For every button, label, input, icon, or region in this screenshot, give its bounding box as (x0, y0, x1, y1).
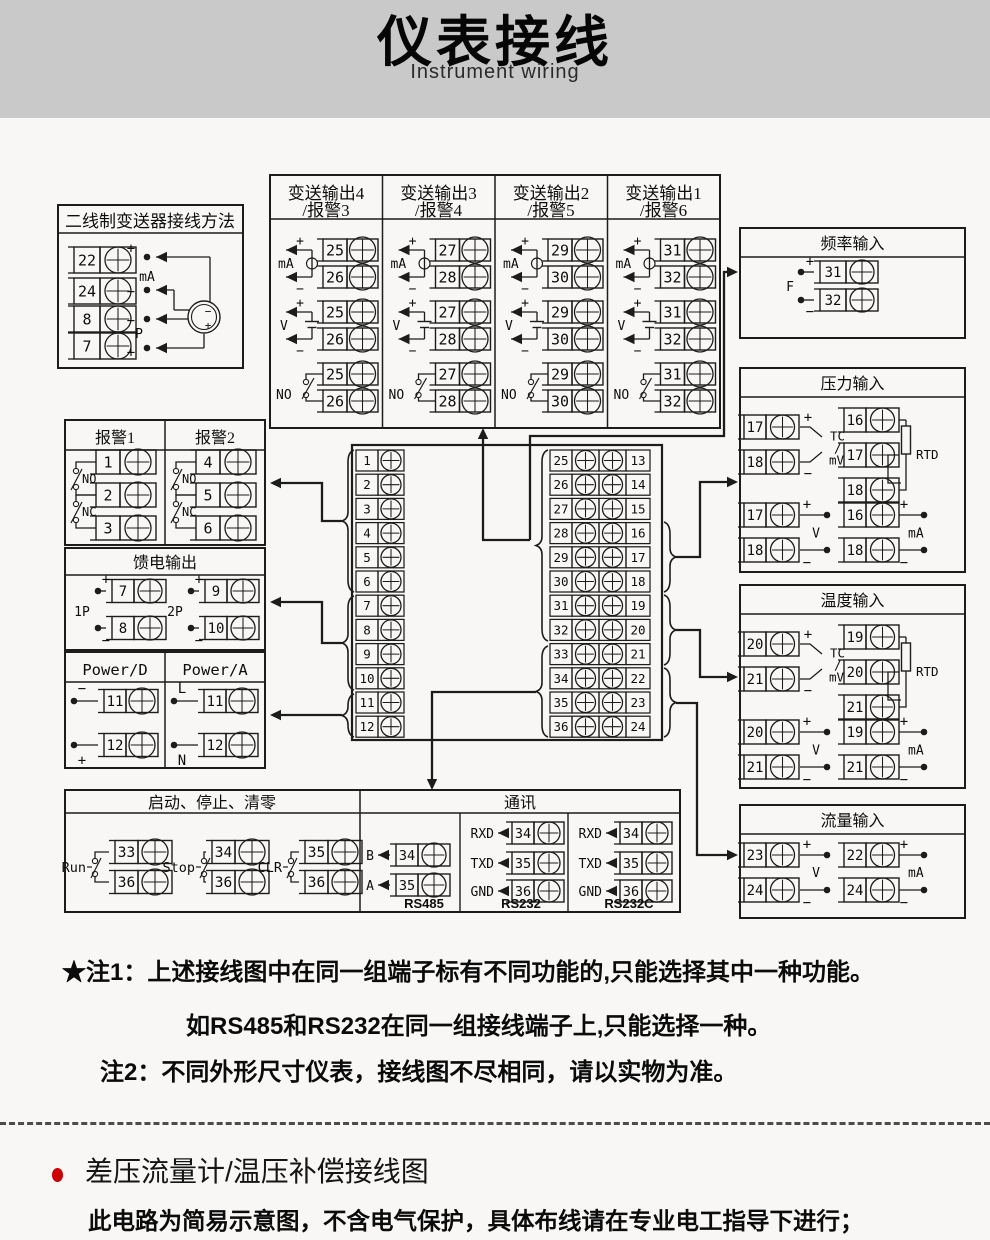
terminal-right-22: 22 (626, 668, 650, 689)
svg-text:−: − (900, 555, 908, 571)
svg-text:−: − (205, 305, 212, 318)
svg-text:35: 35 (308, 845, 325, 861)
terminal-35: 35 (390, 873, 450, 897)
alarm-column-2: 报警2456NONC (171, 429, 256, 541)
svg-text:NO: NO (82, 472, 96, 486)
terminal-29: 29 (542, 299, 603, 325)
svg-text:11: 11 (107, 694, 124, 710)
terminal-31: 31 (814, 260, 878, 284)
svg-text:−: − (634, 282, 642, 297)
terminal-27: 27 (430, 237, 491, 263)
svg-text:35: 35 (515, 856, 531, 872)
svg-text:1: 1 (103, 453, 112, 471)
terminal-mid-31: 31 (550, 595, 626, 616)
svg-text:压力输入: 压力输入 (820, 375, 884, 393)
terminal-left-4: 4 (356, 523, 404, 544)
terminal-left-1: 1 (356, 450, 404, 471)
svg-text:4: 4 (203, 453, 212, 471)
svg-text:−: − (127, 284, 135, 300)
terminal-21: 21 (838, 755, 899, 779)
svg-text:32: 32 (663, 330, 681, 348)
svg-text:18: 18 (847, 483, 864, 499)
svg-text:31: 31 (663, 365, 681, 383)
terminal-6: 6 (190, 515, 256, 541)
svg-text:+: + (803, 714, 811, 730)
svg-text:2: 2 (103, 486, 112, 504)
footer-body: 此电路为简易示意图，不含电气保护，具体布线请在专业电工指导下进行； (88, 1202, 864, 1236)
terminal-8: 8 (106, 616, 166, 640)
svg-text:1P: 1P (74, 605, 90, 620)
terminal-11: 11 (98, 688, 158, 714)
svg-text:−: − (900, 772, 908, 788)
terminal-mid-36: 36 (550, 716, 626, 737)
svg-text:4: 4 (363, 526, 371, 541)
svg-text:V: V (812, 744, 820, 759)
svg-text:+: + (634, 234, 642, 249)
terminal-right-13: 13 (626, 450, 650, 471)
svg-text:28: 28 (553, 526, 568, 541)
feed-group-1P: 78+−1P (74, 572, 166, 649)
terminal-right-17: 17 (626, 547, 650, 568)
terminal-right-21: 21 (626, 644, 650, 665)
arrow-icon (270, 597, 281, 607)
terminal-mid-26: 26 (550, 474, 626, 495)
terminal-35: 35 (506, 852, 564, 874)
footer-heading-text: 差压流量计/温压补偿接线图 (85, 1156, 429, 1187)
svg-text:35: 35 (553, 695, 568, 710)
svg-text:−: − (296, 344, 304, 359)
svg-text:2P: 2P (167, 605, 183, 620)
svg-text:32: 32 (663, 392, 681, 410)
svg-text:mA: mA (278, 257, 294, 272)
svg-text:+: + (900, 837, 908, 853)
svg-text:+: + (634, 296, 642, 311)
svg-text:11: 11 (359, 695, 374, 710)
svg-text:30: 30 (551, 330, 569, 348)
terminal-left-6: 6 (356, 571, 404, 592)
svg-text:24: 24 (747, 883, 764, 899)
svg-text:F: F (786, 280, 794, 295)
svg-text:mA: mA (908, 866, 924, 881)
svg-text:−: − (521, 282, 529, 297)
svg-text:+: + (78, 753, 86, 769)
svg-text:+: + (806, 254, 814, 270)
arrow-icon (270, 478, 281, 488)
svg-text:mA: mA (139, 270, 155, 285)
terminal-mid-34: 34 (550, 668, 626, 689)
svg-text:馈电输出: 馈电输出 (133, 554, 197, 572)
terminal-17: 17 (738, 415, 799, 439)
svg-text:P: P (135, 327, 143, 342)
svg-text:−: − (127, 313, 135, 329)
svg-text:−: − (409, 282, 417, 297)
svg-text:10: 10 (208, 621, 225, 637)
terminal-right-15: 15 (626, 498, 650, 519)
svg-text:32: 32 (825, 293, 842, 309)
svg-text:/报警4: /报警4 (415, 201, 463, 220)
dashed-divider (0, 1122, 990, 1125)
svg-text:1: 1 (363, 453, 371, 468)
svg-text:温度输入: 温度输入 (820, 592, 884, 610)
terminal-19: 19 (838, 720, 899, 744)
terminal-mid-28: 28 (550, 523, 626, 544)
svg-text:−: − (803, 895, 811, 911)
svg-text:NO: NO (182, 472, 196, 486)
comm-group-RS232C: 34RXD35TXD36GNDRS232C (579, 822, 672, 911)
svg-text:+: + (804, 410, 812, 426)
terminal-18: 18 (738, 450, 799, 474)
footer-heading: 差压流量计/温压补偿接线图 (52, 1150, 429, 1190)
terminal-16: 16 (838, 503, 899, 527)
terminal-mid-25: 25 (550, 450, 626, 471)
note-2-label: 注2： (100, 1059, 161, 1086)
svg-text:+: + (900, 497, 908, 513)
terminal-30: 30 (542, 326, 603, 352)
svg-text:−: − (296, 282, 304, 297)
svg-text:Run: Run (62, 860, 86, 876)
terminal-2: 2 (90, 482, 156, 508)
svg-text:−: − (634, 344, 642, 359)
terminal-20: 20 (738, 720, 799, 744)
svg-text:28: 28 (438, 392, 456, 410)
box-alarms: 报警1123NONC报警2456NONC (65, 420, 265, 545)
svg-text:+: + (521, 234, 529, 249)
svg-text:30: 30 (551, 392, 569, 410)
terminal-32: 32 (814, 288, 878, 312)
terminal-34: 34 (390, 843, 450, 867)
svg-text:RTD: RTD (916, 664, 939, 679)
svg-text:31: 31 (825, 265, 842, 281)
svg-text:+: + (127, 345, 135, 361)
svg-text:频率输入: 频率输入 (820, 235, 884, 253)
svg-text:Power/A: Power/A (182, 661, 248, 679)
svg-text:29: 29 (551, 241, 569, 259)
svg-text:22: 22 (630, 671, 645, 686)
terminal-18: 18 (838, 538, 899, 562)
svg-text:11: 11 (207, 694, 224, 710)
svg-text:−: − (409, 344, 417, 359)
svg-text:报警1: 报警1 (95, 429, 135, 447)
svg-text:36: 36 (118, 875, 135, 891)
terminal-19: 19 (838, 625, 899, 649)
svg-text:18: 18 (847, 543, 864, 559)
terminal-34: 34 (614, 822, 672, 844)
svg-text:24: 24 (847, 883, 864, 899)
terminal-10: 10 (199, 616, 259, 640)
svg-text:RXD: RXD (471, 827, 495, 842)
terminal-right-23: 23 (626, 692, 650, 713)
svg-text:26: 26 (326, 330, 344, 348)
svg-text:20: 20 (747, 637, 764, 653)
svg-text:30: 30 (553, 574, 568, 589)
feed-group-2P: 910+−2P (167, 572, 259, 649)
comm-group-RS232: 34RXD35TXD36GNDRS232 (471, 822, 564, 911)
arrow-icon (727, 672, 738, 682)
svg-text:+: + (296, 296, 304, 311)
svg-text:通讯: 通讯 (504, 794, 536, 812)
svg-text:/报警3: /报警3 (302, 201, 349, 220)
terminal-26: 26 (317, 388, 378, 414)
box-power: Power/D11−12+Power/A11L12N (65, 652, 265, 769)
svg-text:2: 2 (363, 477, 371, 492)
svg-text:19: 19 (630, 598, 645, 613)
svg-text:18: 18 (747, 543, 764, 559)
terminal-left-5: 5 (356, 547, 404, 568)
svg-text:22: 22 (78, 251, 96, 269)
svg-text:报警2: 报警2 (195, 429, 235, 447)
svg-text:25: 25 (326, 365, 344, 383)
terminal-31: 31 (655, 237, 716, 263)
svg-text:V: V (280, 319, 288, 334)
svg-text:36: 36 (215, 875, 232, 891)
power-column-1: Power/D11−12+ (71, 661, 158, 769)
svg-text:V: V (812, 866, 820, 881)
terminal-31: 31 (655, 299, 716, 325)
note-1-label: ★注1： (62, 959, 147, 986)
svg-text:22: 22 (847, 848, 864, 864)
svg-text:25: 25 (326, 303, 344, 321)
svg-text:mA: mA (908, 744, 924, 759)
box-run-stop-comm: 启动、停止、清零通讯3336Run3436Stop3536CLR34B35ARS… (62, 790, 680, 912)
terminal-mid-27: 27 (550, 498, 626, 519)
svg-text:15: 15 (630, 501, 645, 516)
terminal-12: 12 (198, 732, 258, 758)
box-flow-input: 流量输入2324+−V2224+−mA (738, 805, 965, 918)
note-1: ★注1：上述接线图中在同一组端子标有不同功能的,只能选择其中一种功能。 (62, 952, 874, 987)
svg-text:mA: mA (391, 257, 407, 272)
svg-text:V: V (505, 319, 513, 334)
terminal-17: 17 (738, 503, 799, 527)
terminal-25: 25 (317, 299, 378, 325)
bullet-icon (52, 1168, 63, 1182)
terminal-21: 21 (738, 667, 799, 691)
svg-text:mV: mV (829, 670, 845, 685)
svg-text:5: 5 (363, 550, 371, 565)
svg-text:/报警6: /报警6 (640, 201, 687, 220)
svg-text:5: 5 (203, 486, 212, 504)
terminal-24: 24 (738, 878, 799, 902)
terminal-1: 1 (90, 449, 156, 475)
svg-text:CLR: CLR (258, 860, 283, 876)
terminal-30: 30 (542, 388, 603, 414)
terminal-left-3: 3 (356, 498, 404, 519)
svg-text:−: − (521, 344, 529, 359)
power-column-2: Power/A11L12N (171, 661, 258, 769)
svg-text:16: 16 (847, 413, 864, 429)
svg-text:20: 20 (747, 725, 764, 741)
svg-text:mA: mA (503, 257, 519, 272)
terminal-29: 29 (542, 237, 603, 263)
svg-text:32: 32 (553, 622, 568, 637)
terminal-left-9: 9 (356, 644, 404, 665)
svg-text:21: 21 (747, 672, 764, 688)
svg-text:B: B (366, 849, 374, 864)
svg-text:−: − (195, 633, 203, 649)
note-1-text: 上述接线图中在同一组端子标有不同功能的,只能选择其中一种功能。 (147, 959, 874, 986)
svg-text:35: 35 (399, 878, 415, 894)
alarm-column-1: 报警1123NONC (71, 429, 156, 541)
terminal-right-19: 19 (626, 595, 650, 616)
note-1-continued: 如RS485和RS232在同一组接线端子上,只能选择一种。 (186, 1006, 771, 1041)
svg-text:Power/D: Power/D (82, 661, 147, 679)
terminal-left-11: 11 (356, 692, 404, 713)
svg-text:RS485: RS485 (404, 896, 444, 911)
arrow-icon (727, 267, 738, 277)
svg-text:−: − (900, 895, 908, 911)
svg-text:−: − (78, 681, 86, 697)
arrow-icon (727, 477, 738, 487)
svg-text:−: − (803, 772, 811, 788)
svg-text:29: 29 (551, 365, 569, 383)
svg-text:9: 9 (212, 584, 220, 600)
terminal-16: 16 (838, 408, 899, 432)
svg-text:33: 33 (118, 845, 135, 861)
svg-text:6: 6 (363, 574, 371, 589)
svg-text:18: 18 (747, 455, 764, 471)
svg-text:8: 8 (119, 621, 127, 637)
terminal-4: 4 (190, 449, 256, 475)
svg-text:7: 7 (119, 584, 127, 600)
switch-CLR: 3536CLR (258, 839, 362, 895)
terminal-25: 25 (317, 361, 378, 387)
svg-text:−: − (804, 466, 812, 482)
terminal-26: 26 (317, 264, 378, 290)
terminal-11: 11 (198, 688, 258, 714)
svg-text:31: 31 (663, 241, 681, 259)
svg-text:25: 25 (553, 453, 568, 468)
svg-text:17: 17 (747, 420, 764, 436)
svg-text:32: 32 (663, 268, 681, 286)
svg-text:16: 16 (630, 526, 645, 541)
svg-text:14: 14 (630, 477, 645, 492)
svg-text:35: 35 (623, 856, 639, 872)
svg-text:mA: mA (616, 257, 632, 272)
terminal-25: 25 (317, 237, 378, 263)
terminal-21: 21 (838, 695, 899, 719)
svg-text:+: + (900, 714, 908, 730)
terminal-18: 18 (738, 538, 799, 562)
svg-text:A: A (366, 879, 374, 894)
svg-text:33: 33 (553, 647, 568, 662)
svg-text:/报警5: /报警5 (527, 201, 574, 220)
svg-text:8: 8 (82, 310, 91, 328)
svg-text:+: + (803, 497, 811, 513)
terminal-left-7: 7 (356, 595, 404, 616)
svg-text:TXD: TXD (579, 857, 603, 872)
svg-text:V: V (618, 319, 626, 334)
terminal-35: 35 (614, 852, 672, 874)
terminal-9: 9 (199, 579, 259, 603)
terminal-left-2: 2 (356, 474, 404, 495)
svg-text:21: 21 (630, 647, 645, 662)
svg-text:23: 23 (630, 695, 645, 710)
svg-text:NO: NO (614, 388, 630, 403)
svg-text:12: 12 (359, 719, 374, 734)
terminal-34: 34 (506, 822, 564, 844)
svg-text:V: V (812, 527, 820, 542)
svg-text:+: + (127, 241, 135, 257)
svg-text:启动、停止、清零: 启动、停止、清零 (148, 794, 276, 812)
svg-text:26: 26 (326, 268, 344, 286)
svg-text:NO: NO (389, 388, 405, 403)
svg-text:L: L (178, 681, 186, 697)
terminal-27: 27 (430, 299, 491, 325)
terminal-32: 32 (655, 264, 716, 290)
terminal-22: 22 (838, 843, 899, 867)
arrow-icon (478, 428, 488, 439)
note-2: 注2：不同外形尺寸仪表，接线图不尽相同，请以实物为准。 (100, 1052, 737, 1087)
svg-text:21: 21 (847, 760, 864, 776)
svg-text:mV: mV (829, 453, 845, 468)
svg-text:23: 23 (747, 848, 764, 864)
svg-text:34: 34 (553, 671, 568, 686)
svg-text:27: 27 (553, 501, 568, 516)
terminal-left-8: 8 (356, 619, 404, 640)
terminal-28: 28 (430, 264, 491, 290)
svg-text:12: 12 (207, 738, 224, 754)
svg-text:9: 9 (363, 647, 371, 662)
arrow-icon (727, 850, 738, 860)
svg-text:28: 28 (438, 330, 456, 348)
terminal-mid-33: 33 (550, 644, 626, 665)
terminal-18: 18 (838, 478, 899, 502)
svg-text:−: − (804, 683, 812, 699)
center-terminal-block: 1234567891011122526272829303132333435361… (342, 445, 676, 740)
svg-text:27: 27 (438, 365, 456, 383)
comm-group-RS485: 34B35ARS485 (366, 843, 450, 911)
page: 仪表接线 Instrument wiring 二线制变送器接线方法222487+… (0, 0, 990, 1240)
box-two-wire-transmitter: 二线制变送器接线方法222487+mA−−P+−+ (58, 205, 243, 368)
terminal-right-20: 20 (626, 619, 650, 640)
svg-text:17: 17 (847, 448, 864, 464)
terminal-mid-29: 29 (550, 547, 626, 568)
svg-text:30: 30 (551, 268, 569, 286)
svg-text:7: 7 (82, 337, 91, 355)
svg-text:20: 20 (630, 622, 645, 637)
svg-text:25: 25 (326, 241, 344, 259)
svg-text:二线制变送器接线方法: 二线制变送器接线方法 (65, 212, 235, 231)
terminal-right-14: 14 (626, 474, 650, 495)
svg-text:17: 17 (630, 550, 645, 565)
box-pressure-input: 压力输入1718+−TC/mV161718RTD1718+−V1618+−mA (738, 368, 965, 572)
svg-text:+: + (409, 234, 417, 249)
svg-text:27: 27 (438, 303, 456, 321)
svg-text:31: 31 (663, 303, 681, 321)
svg-text:21: 21 (847, 700, 864, 716)
svg-text:+: + (803, 837, 811, 853)
terminal-28: 28 (430, 326, 491, 352)
terminal-28: 28 (430, 388, 491, 414)
svg-text:24: 24 (630, 719, 645, 734)
box-temperature-input: 温度输入2021+−TC/mV192021RTD2021+−V1921+−mA (738, 585, 965, 788)
terminal-mid-35: 35 (550, 692, 626, 713)
svg-text:NC: NC (82, 505, 96, 519)
arrow-icon (270, 710, 281, 720)
svg-text:34: 34 (215, 845, 233, 861)
svg-text:+: + (804, 627, 812, 643)
note-2-text: 不同外形尺寸仪表，接线图不尽相同，请以实物为准。 (161, 1059, 737, 1086)
terminal-mid-30: 30 (550, 571, 626, 592)
svg-text:19: 19 (847, 630, 864, 646)
terminal-32: 32 (655, 326, 716, 352)
svg-text:+: + (296, 234, 304, 249)
svg-text:NC: NC (182, 505, 196, 519)
svg-text:GND: GND (579, 885, 603, 900)
terminal-31: 31 (655, 361, 716, 387)
svg-text:+: + (521, 296, 529, 311)
terminal-7: 7 (106, 579, 166, 603)
svg-text:21: 21 (747, 760, 764, 776)
